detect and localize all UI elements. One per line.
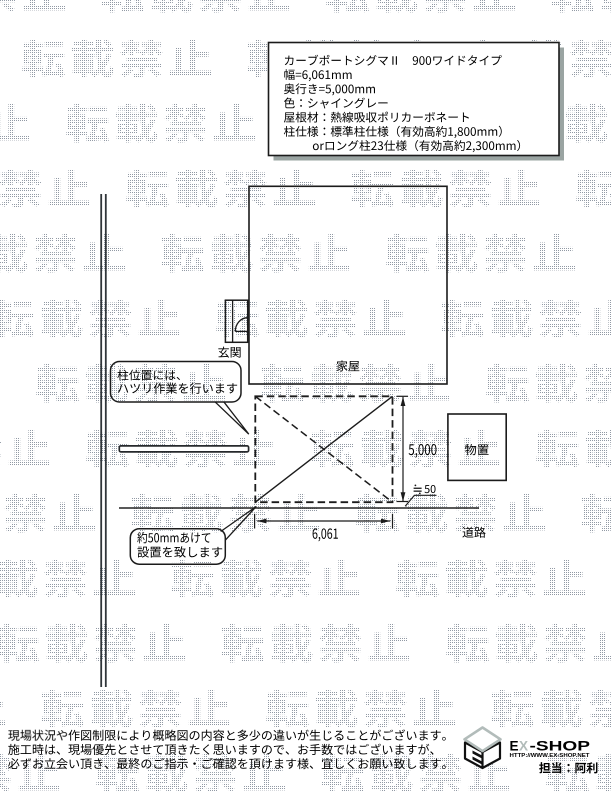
svg-text:HTTP://WWW.EX-SHOP.NET: HTTP://WWW.EX-SHOP.NET <box>510 753 591 759</box>
svg-text:X: X <box>519 739 528 754</box>
svg-text:-SHOP: -SHOP <box>530 739 591 754</box>
svg-text:E: E <box>510 739 519 754</box>
